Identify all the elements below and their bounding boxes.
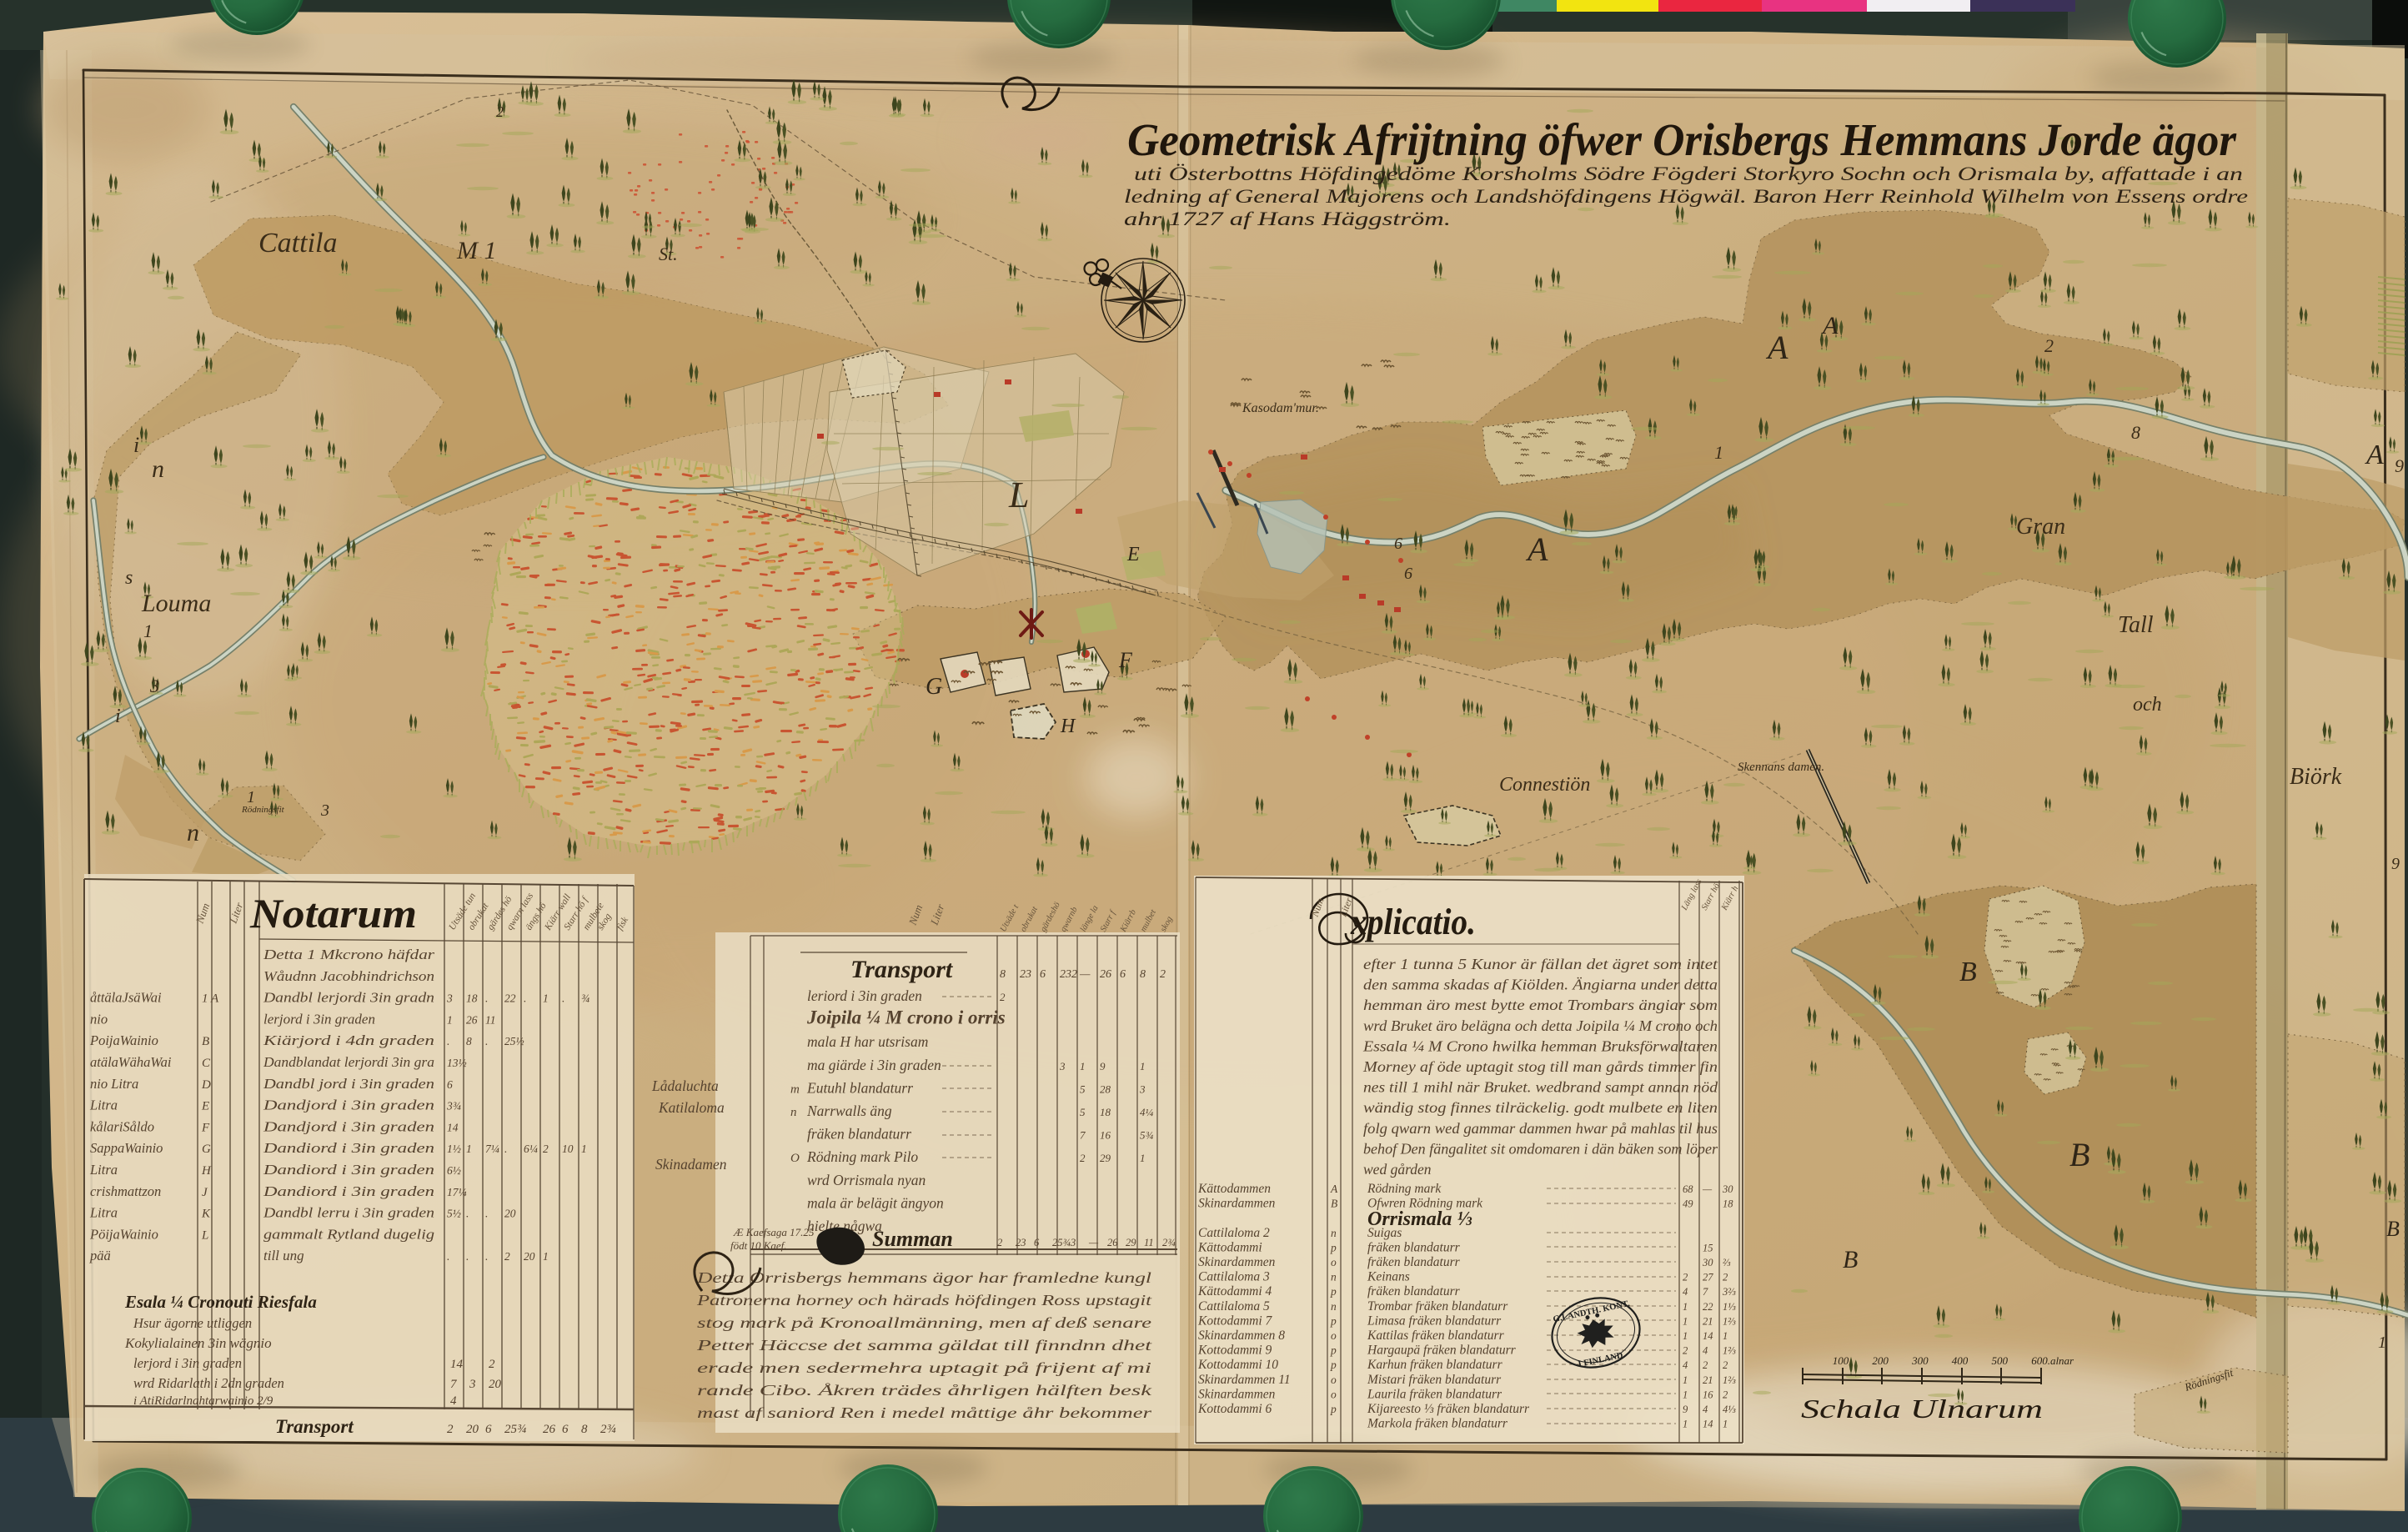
svg-text:6: 6: [562, 1423, 569, 1436]
svg-text:6½: 6½: [447, 1164, 461, 1177]
svg-text:St.: St.: [659, 244, 678, 264]
svg-text:O: O: [790, 1152, 800, 1165]
svg-text:.: .: [485, 1208, 488, 1220]
svg-text:G: G: [926, 674, 942, 700]
svg-text:Skinardammen: Skinardammen: [1198, 1255, 1276, 1269]
svg-text:nio Litra: nio Litra: [90, 1076, 138, 1092]
svg-text:Geometrisk Afrijtning öfwer Or: Geometrisk Afrijtning öfwer Orisbergs He…: [1127, 114, 2237, 165]
svg-text:30: 30: [1702, 1257, 1713, 1268]
svg-text:.: .: [447, 1035, 449, 1047]
svg-text:7: 7: [1080, 1129, 1086, 1142]
svg-text:Kasodam'mur.: Kasodam'mur.: [1242, 401, 1319, 415]
svg-text:21: 21: [1703, 1374, 1713, 1386]
svg-text:mast af saniord Ren i medel må: mast af saniord Ren i medel måttige åhr …: [697, 1404, 1151, 1421]
svg-text:1: 1: [247, 788, 255, 806]
svg-text:2¾: 2¾: [600, 1423, 616, 1436]
svg-text:A: A: [1525, 530, 1548, 568]
svg-text:B: B: [202, 1035, 209, 1048]
svg-text:Rödning mark: Rödning mark: [1367, 1182, 1442, 1196]
svg-text:2: 2: [543, 1143, 549, 1155]
svg-text:500: 500: [1992, 1354, 2009, 1367]
svg-text:1: 1: [581, 1143, 587, 1155]
svg-text:18: 18: [1100, 1106, 1111, 1118]
svg-text:—: —: [1079, 968, 1091, 981]
svg-text:6¼: 6¼: [524, 1143, 538, 1155]
svg-text:kålariSåldo: kålariSåldo: [90, 1118, 154, 1134]
svg-text:födt 10 Kaef.: födt 10 Kaef.: [730, 1239, 787, 1252]
svg-text:23: 23: [1016, 1237, 1026, 1248]
svg-text:5¾: 5¾: [1140, 1129, 1154, 1142]
svg-text:crishmattzon: crishmattzon: [90, 1183, 161, 1199]
svg-text:1: 1: [543, 992, 549, 1005]
svg-text:25¾: 25¾: [504, 1423, 526, 1436]
svg-text:Dandbl lerru i 3in graden: Dandbl lerru i 3in graden: [263, 1205, 434, 1221]
svg-text:Cattila: Cattila: [258, 228, 337, 259]
svg-text:SappaWainio: SappaWainio: [90, 1140, 163, 1156]
svg-text:Skennans damen.: Skennans damen.: [1738, 761, 1824, 774]
svg-text:4: 4: [1683, 1359, 1688, 1371]
svg-text:atälaWähaWai: atälaWähaWai: [90, 1054, 172, 1070]
svg-text:17¼: 17¼: [447, 1186, 467, 1198]
svg-text:Summan: Summan: [872, 1227, 953, 1251]
svg-text:PoijaWainio: PoijaWainio: [89, 1032, 158, 1048]
svg-text:1⅔: 1⅔: [1723, 1374, 1736, 1386]
svg-text:den samma skadas af Kiölden. Ä: den samma skadas af Kiölden. Ängiarna un…: [1363, 977, 1718, 993]
svg-text:Laurila fräken blandaturr: Laurila fräken blandaturr: [1367, 1387, 1502, 1401]
svg-text:Tall: Tall: [2118, 612, 2154, 638]
svg-text:A: A: [1330, 1183, 1338, 1195]
svg-text:B: B: [2386, 1217, 2400, 1241]
svg-text:2: 2: [2044, 335, 2054, 356]
svg-text:A: A: [1765, 329, 1788, 366]
svg-text:3: 3: [1070, 1237, 1076, 1248]
svg-text:3: 3: [149, 676, 159, 696]
svg-text:Skinardammen: Skinardammen: [1198, 1197, 1276, 1211]
svg-text:p: p: [1330, 1403, 1337, 1415]
svg-text:lerjord i 3in graden: lerjord i 3in graden: [133, 1355, 242, 1371]
svg-text:o: o: [1331, 1388, 1337, 1400]
svg-text:2: 2: [1000, 991, 1006, 1003]
svg-text:Dandjord i 3in graden: Dandjord i 3in graden: [263, 1098, 434, 1113]
svg-text:3: 3: [1139, 1082, 1146, 1095]
svg-text:1: 1: [1683, 1330, 1688, 1342]
svg-text:300: 300: [1911, 1354, 1929, 1367]
svg-text:11: 11: [1144, 1237, 1154, 1248]
svg-text:folg qwarn wed gammar dammen h: folg qwarn wed gammar dammen hwar på mah…: [1363, 1120, 1718, 1137]
svg-text:i: i: [133, 433, 139, 457]
svg-text:erade men sedermehra uptagit p: erade men sedermehra uptagit på frijent …: [697, 1359, 1151, 1376]
svg-text:i: i: [115, 706, 121, 727]
svg-text:H: H: [201, 1164, 212, 1178]
svg-text:29: 29: [1100, 1152, 1111, 1164]
svg-text:7¼: 7¼: [485, 1143, 499, 1155]
svg-text:Esala ¼ Cronouti Riesfala: Esala ¼ Cronouti Riesfala: [124, 1292, 317, 1312]
svg-text:Skinardammen 11: Skinardammen 11: [1198, 1373, 1291, 1387]
svg-text:G: G: [202, 1143, 211, 1156]
svg-text:Eutuhl blandaturr: Eutuhl blandaturr: [806, 1079, 913, 1096]
svg-text:—: —: [1088, 1237, 1099, 1248]
svg-text:6: 6: [1034, 1237, 1040, 1248]
svg-text:3¾: 3¾: [446, 1100, 461, 1113]
svg-text:20: 20: [504, 1208, 516, 1220]
svg-text:Suigas: Suigas: [1367, 1226, 1402, 1240]
svg-text:Kottodammi 6: Kottodammi 6: [1197, 1402, 1272, 1416]
svg-text:ahr 1727 af Hans Häggström.: ahr 1727 af Hans Häggström.: [1124, 208, 1451, 229]
svg-text:25½: 25½: [504, 1035, 524, 1047]
svg-text:15: 15: [1703, 1242, 1713, 1253]
svg-text:p: p: [1330, 1241, 1337, 1253]
svg-text:28: 28: [1100, 1082, 1111, 1095]
svg-text:E: E: [1126, 544, 1140, 565]
svg-text:5½: 5½: [447, 1208, 461, 1220]
svg-text:lerjord i 3in graden: lerjord i 3in graden: [263, 1011, 375, 1027]
svg-text:9: 9: [1683, 1404, 1688, 1415]
svg-text:wrd Bruket äro belägna och det: wrd Bruket äro belägna och detta Joipila…: [1363, 1017, 1718, 1034]
svg-text:Markola fräken blandaturr: Markola fräken blandaturr: [1367, 1417, 1508, 1431]
svg-text:4: 4: [1683, 1286, 1688, 1298]
svg-text:Dandiord i 3in graden: Dandiord i 3in graden: [263, 1162, 434, 1178]
svg-text:o: o: [1331, 1329, 1337, 1342]
svg-text:1: 1: [447, 1013, 453, 1026]
svg-text:PöijaWainio: PöijaWainio: [89, 1226, 158, 1242]
svg-text:Kättodammi: Kättodammi: [1197, 1240, 1262, 1254]
svg-text:Gran: Gran: [2016, 514, 2065, 540]
svg-text:1: 1: [1683, 1301, 1688, 1313]
svg-text:Kottodammi 7: Kottodammi 7: [1197, 1314, 1273, 1328]
svg-text:Narrwalls äng: Narrwalls äng: [806, 1103, 892, 1119]
svg-text:3: 3: [320, 801, 329, 820]
svg-text:1 A: 1 A: [202, 992, 219, 1006]
svg-text:hemman äro mest bytte emot Tro: hemman äro mest bytte emot Trombars ängi…: [1363, 997, 1718, 1013]
svg-text:fräken blandaturr: fräken blandaturr: [1367, 1255, 1461, 1269]
svg-text:—: —: [1702, 1183, 1713, 1195]
svg-text:F: F: [1118, 648, 1133, 672]
svg-text:Detta Orrisbergs hemmans ägor: Detta Orrisbergs hemmans ägor har framle…: [696, 1269, 1152, 1286]
svg-text:1: 1: [543, 1250, 549, 1263]
svg-text:8: 8: [1000, 968, 1006, 981]
svg-text:.: .: [524, 992, 526, 1005]
svg-text:Æ Kaefsaga 17.25: Æ Kaefsaga 17.25: [733, 1226, 815, 1238]
svg-text:E: E: [201, 1100, 209, 1113]
svg-text:1: 1: [1714, 442, 1723, 463]
svg-text:wrd Orrismala nyan: wrd Orrismala nyan: [807, 1172, 926, 1188]
svg-text:xplicatio.: xplicatio.: [1350, 902, 1476, 942]
svg-text:B: B: [1959, 957, 1977, 987]
svg-text:stog mark på Kronoallmänning,: stog mark på Kronoallmänning, men af deß…: [697, 1314, 1151, 1331]
svg-text:21: 21: [1703, 1315, 1713, 1327]
svg-text:B: B: [1843, 1246, 1858, 1273]
svg-text:68: 68: [1683, 1183, 1693, 1195]
svg-text:1: 1: [1080, 1060, 1086, 1072]
svg-text:.: .: [485, 1035, 488, 1047]
svg-text:1: 1: [143, 620, 153, 641]
svg-text:Kottodammi 10: Kottodammi 10: [1197, 1358, 1278, 1372]
svg-text:Rödning mark Pilo: Rödning mark Pilo: [806, 1148, 918, 1165]
svg-text:Louma: Louma: [141, 590, 211, 617]
svg-text:27: 27: [1703, 1272, 1713, 1283]
svg-text:26: 26: [466, 1013, 478, 1026]
svg-text:Skinardammen: Skinardammen: [1198, 1387, 1276, 1401]
svg-text:p: p: [1330, 1359, 1337, 1371]
svg-text:M 1: M 1: [456, 237, 497, 264]
svg-text:Dandbl lerjordi 3in gradn: Dandbl lerjordi 3in gradn: [263, 990, 434, 1006]
svg-text:6: 6: [485, 1423, 492, 1436]
svg-text:2: 2: [496, 103, 504, 120]
svg-text:Connestiön: Connestiön: [1499, 774, 1590, 796]
svg-text:till ung: till ung: [263, 1248, 304, 1263]
svg-text:.: .: [504, 1143, 507, 1155]
svg-text:Dandiord i 3in graden: Dandiord i 3in graden: [263, 1140, 434, 1156]
svg-text:2¾: 2¾: [1162, 1237, 1176, 1248]
svg-text:232: 232: [1060, 968, 1077, 981]
svg-text:30: 30: [1722, 1183, 1733, 1195]
svg-text:600.alnar: 600.alnar: [2031, 1354, 2074, 1367]
svg-text:.: .: [562, 992, 564, 1005]
svg-text:B: B: [1331, 1198, 1337, 1210]
svg-text:Trombar fräken blandaturr: Trombar fräken blandaturr: [1367, 1299, 1508, 1314]
svg-text:4: 4: [1703, 1404, 1708, 1415]
svg-text:o: o: [1331, 1256, 1337, 1268]
svg-text:9: 9: [2395, 455, 2404, 476]
svg-text:fräken blandaturr: fräken blandaturr: [807, 1126, 911, 1143]
svg-text:3: 3: [1059, 1060, 1066, 1072]
svg-text:Kattilas fräken blandaturr: Kattilas fräken blandaturr: [1367, 1329, 1505, 1343]
svg-text:9: 9: [1100, 1060, 1106, 1072]
svg-text:22: 22: [504, 992, 516, 1005]
svg-text:7: 7: [1703, 1286, 1708, 1298]
svg-text:13½: 13½: [447, 1057, 467, 1069]
svg-text:6: 6: [447, 1078, 453, 1091]
svg-text:18: 18: [466, 992, 478, 1005]
svg-text:Keinans: Keinans: [1367, 1270, 1410, 1284]
svg-text:m: m: [790, 1082, 800, 1096]
svg-text:åttälaJsäWai: åttälaJsäWai: [90, 990, 162, 1006]
svg-text:Litra: Litra: [89, 1162, 118, 1178]
svg-text:Dandbl jord i 3in graden: Dandbl jord i 3in graden: [263, 1076, 434, 1092]
svg-text:Transport: Transport: [850, 956, 954, 983]
svg-text:3⅔: 3⅔: [1722, 1286, 1736, 1298]
svg-text:fräken blandaturr: fräken blandaturr: [1367, 1240, 1461, 1254]
svg-text:n: n: [790, 1106, 797, 1119]
svg-text:Kijareesto ⅓ fräken blandatur: Kijareesto ⅓ fräken blandaturr: [1367, 1402, 1530, 1416]
svg-text:Skinardammen 8: Skinardammen 8: [1198, 1329, 1285, 1343]
svg-text:Rödningsfit: Rödningsfit: [241, 805, 285, 815]
svg-text:pää: pää: [89, 1248, 111, 1263]
svg-text:2: 2: [1703, 1359, 1708, 1371]
svg-text:100: 100: [1833, 1354, 1849, 1367]
svg-text:11: 11: [485, 1013, 496, 1026]
svg-text:16: 16: [1100, 1129, 1111, 1142]
svg-text:22: 22: [1703, 1301, 1713, 1313]
svg-text:Petter Häccse det samma gäldat: Petter Häccse det samma gäldat till finn…: [695, 1337, 1152, 1354]
svg-text:1: 1: [2378, 1334, 2386, 1352]
svg-text:2: 2: [1683, 1345, 1688, 1357]
svg-text:.: .: [485, 1250, 488, 1263]
svg-text:2: 2: [1723, 1359, 1728, 1371]
svg-text:och: och: [2133, 694, 2162, 716]
svg-text:Skinadamen: Skinadamen: [655, 1156, 727, 1173]
svg-text:p: p: [1330, 1344, 1337, 1357]
svg-text:nio: nio: [90, 1011, 108, 1027]
svg-text:4¼: 4¼: [1140, 1106, 1154, 1118]
svg-text:n: n: [1331, 1227, 1337, 1239]
svg-text:Lådaluchta: Lådaluchta: [651, 1077, 719, 1094]
svg-text:6: 6: [1040, 968, 1046, 981]
svg-text:8: 8: [466, 1035, 472, 1047]
svg-text:wed gården: wed gården: [1363, 1161, 1432, 1178]
svg-text:behof Den fängalitet sit omdom: behof Den fängalitet sit omdomaren i dän…: [1363, 1140, 1718, 1157]
svg-text:26: 26: [1107, 1237, 1118, 1248]
svg-text:Detta 1 Mkcrono häfdar: Detta 1 Mkcrono häfdar: [263, 947, 435, 962]
svg-text:4⅓: 4⅓: [1723, 1404, 1736, 1415]
svg-text:20: 20: [466, 1423, 479, 1436]
svg-text:1: 1: [1683, 1389, 1688, 1400]
svg-text:Wåudnn Jacobhindrichson: Wåudnn Jacobhindrichson: [263, 968, 434, 984]
svg-text:Litra: Litra: [89, 1205, 118, 1221]
svg-text:1½: 1½: [447, 1143, 461, 1155]
svg-text:i AtiRidarlnahtarwainio 2/9: i AtiRidarlnahtarwainio 2/9: [133, 1394, 273, 1408]
svg-text:leriord i 3in graden: leriord i 3in graden: [807, 987, 922, 1004]
svg-text:p: p: [1330, 1285, 1337, 1298]
svg-text:1: 1: [1683, 1315, 1688, 1327]
svg-text:K: K: [201, 1208, 211, 1221]
svg-text:A: A: [1821, 312, 1839, 339]
svg-text:2: 2: [1683, 1272, 1688, 1283]
svg-text:14: 14: [1703, 1330, 1713, 1342]
svg-text:Hargaupä fräken blandaturr: Hargaupä fräken blandaturr: [1367, 1344, 1517, 1358]
svg-text:Patronerna horney och härads h: Patronerna horney och härads höfdingen R…: [696, 1292, 1153, 1308]
svg-text:n: n: [187, 819, 199, 846]
svg-text:Notarum: Notarum: [249, 890, 417, 937]
svg-text:A: A: [2365, 440, 2384, 470]
svg-text:Biörk: Biörk: [2290, 764, 2342, 790]
svg-text:o: o: [1331, 1374, 1337, 1386]
svg-text:49: 49: [1683, 1198, 1693, 1210]
svg-text:26: 26: [543, 1423, 556, 1436]
svg-text:2: 2: [504, 1250, 510, 1263]
svg-text:p: p: [1330, 1314, 1337, 1327]
svg-text:Karhun fräken blandaturr: Karhun fräken blandaturr: [1367, 1358, 1503, 1372]
svg-text:Joipila ¼ M crono i orris: Joipila ¼ M crono i orris: [806, 1007, 1006, 1028]
svg-text:20: 20: [524, 1250, 535, 1263]
svg-text:1: 1: [1683, 1419, 1688, 1430]
svg-text:Hsur ägorne utliggen: Hsur ägorne utliggen: [133, 1315, 252, 1331]
svg-text:18: 18: [1723, 1198, 1733, 1210]
svg-text:2: 2: [1723, 1272, 1728, 1283]
svg-text:n: n: [1331, 1300, 1337, 1313]
svg-text:Katilaloma: Katilaloma: [658, 1099, 725, 1116]
svg-text:nes till 1 mihl när Bruket. we: nes till 1 mihl när Bruket. wedbrand sam…: [1363, 1079, 1718, 1096]
svg-text:1⅓: 1⅓: [1723, 1301, 1736, 1313]
svg-text:fräken blandaturr: fräken blandaturr: [1367, 1284, 1461, 1298]
svg-text:Kättodammi 4: Kättodammi 4: [1197, 1284, 1272, 1298]
svg-text:uti Österbottns Höfdingedöme K: uti Österbottns Höfdingedöme Korsholms S…: [1134, 163, 2243, 184]
svg-text:⅔: ⅔: [1723, 1257, 1731, 1268]
svg-text:Dandblandat lerjordi 3in gra: Dandblandat lerjordi 3in gra: [263, 1054, 434, 1070]
svg-text:Cattilaloma 5: Cattilaloma 5: [1198, 1299, 1270, 1314]
svg-text:3: 3: [446, 992, 453, 1005]
svg-text:Kokylialainen 3in wägnio: Kokylialainen 3in wägnio: [124, 1335, 272, 1351]
svg-text:.: .: [466, 1208, 469, 1220]
svg-text:1⅔: 1⅔: [1723, 1315, 1736, 1327]
svg-text:Cattilaloma 2: Cattilaloma 2: [1198, 1226, 1270, 1240]
svg-text:L: L: [1008, 475, 1029, 515]
svg-text:L: L: [201, 1228, 208, 1242]
svg-text:29: 29: [1126, 1237, 1136, 1248]
svg-text:1⅔: 1⅔: [1723, 1345, 1736, 1357]
svg-text:.: .: [466, 1250, 469, 1263]
svg-text:26: 26: [1100, 968, 1111, 981]
svg-text:14: 14: [1703, 1419, 1713, 1430]
svg-text:6: 6: [1394, 535, 1402, 553]
svg-text:16: 16: [1703, 1389, 1713, 1400]
svg-text:Morney af öde uptagit stog til: Morney af öde uptagit stog till man gård…: [1362, 1058, 1718, 1075]
svg-text:Cattilaloma 3: Cattilaloma 3: [1198, 1270, 1270, 1284]
svg-text:s: s: [125, 567, 133, 589]
svg-text:wändig stog finnes tilräckelig: wändig stog finnes tilräckelig. godt mul…: [1363, 1099, 1718, 1116]
svg-text:1: 1: [1140, 1060, 1146, 1072]
svg-text:20: 20: [489, 1378, 502, 1391]
svg-text:Kottodammi 9: Kottodammi 9: [1197, 1344, 1272, 1358]
svg-text:2: 2: [489, 1358, 495, 1371]
svg-text:1: 1: [1140, 1152, 1146, 1164]
svg-text:Schala Ulnarum: Schala Ulnarum: [1801, 1394, 2043, 1424]
svg-text:n: n: [152, 455, 164, 483]
svg-text:wrd Ridarlath i 2dn graden: wrd Ridarlath i 2dn graden: [133, 1375, 284, 1391]
svg-text:C: C: [202, 1057, 211, 1070]
svg-text:gammalt Rytland dugelig: gammalt Rytland dugelig: [263, 1226, 434, 1242]
svg-text:2: 2: [1080, 1152, 1086, 1164]
svg-text:¾: ¾: [581, 992, 589, 1005]
svg-text:14: 14: [450, 1358, 464, 1371]
svg-text:23: 23: [1020, 968, 1031, 981]
svg-text:ma giärde i 3in graden: ma giärde i 3in graden: [807, 1057, 941, 1073]
svg-text:Essala ¼ M Crono hwilka hemman: Essala ¼ M Crono hwilka hemman Bruksförw…: [1362, 1037, 1718, 1054]
svg-text:H: H: [1060, 716, 1076, 737]
svg-text:400: 400: [1952, 1354, 1969, 1367]
svg-text:rande Cibo. Åkren trädes åhrli: rande Cibo. Åkren trädes åhrligen hälfte…: [697, 1382, 1153, 1399]
svg-text:mala är belägit ängyon: mala är belägit ängyon: [807, 1194, 944, 1211]
svg-text:6: 6: [1404, 565, 1412, 583]
svg-text:2: 2: [1723, 1389, 1728, 1400]
svg-text:8: 8: [1140, 968, 1146, 981]
svg-text:Limasa fräken blandaturr: Limasa fräken blandaturr: [1367, 1314, 1502, 1328]
svg-text:Dandiord i 3in graden: Dandiord i 3in graden: [263, 1183, 434, 1199]
svg-text:Kiärjord i 4dn graden: Kiärjord i 4dn graden: [263, 1032, 434, 1048]
svg-text:4: 4: [450, 1394, 457, 1408]
svg-text:Mistari fräken blandaturr: Mistari fräken blandaturr: [1367, 1373, 1502, 1387]
svg-text:n: n: [1331, 1271, 1337, 1283]
svg-text:1: 1: [1723, 1330, 1728, 1342]
svg-text:1: 1: [466, 1143, 472, 1155]
svg-text:F: F: [201, 1121, 210, 1134]
svg-text:1: 1: [1723, 1419, 1728, 1430]
svg-text:Transport: Transport: [275, 1416, 354, 1437]
svg-text:8: 8: [2131, 422, 2140, 443]
svg-text:efter 1 tunna 5 Kunor är fälla: efter 1 tunna 5 Kunor är fällan det ägre…: [1363, 956, 1718, 972]
svg-text:10: 10: [562, 1143, 574, 1155]
svg-text:D: D: [201, 1078, 211, 1092]
svg-text:4: 4: [1703, 1345, 1708, 1357]
svg-text:25¾: 25¾: [1052, 1237, 1071, 1248]
svg-text:8: 8: [581, 1423, 588, 1436]
svg-text:5: 5: [1080, 1082, 1086, 1095]
svg-text:2: 2: [1160, 968, 1166, 981]
svg-text:.: .: [447, 1250, 449, 1263]
svg-text:mala H har utsrisam: mala H har utsrisam: [807, 1033, 928, 1050]
svg-text:Litra: Litra: [89, 1098, 118, 1113]
svg-text:200: 200: [1872, 1354, 1889, 1367]
